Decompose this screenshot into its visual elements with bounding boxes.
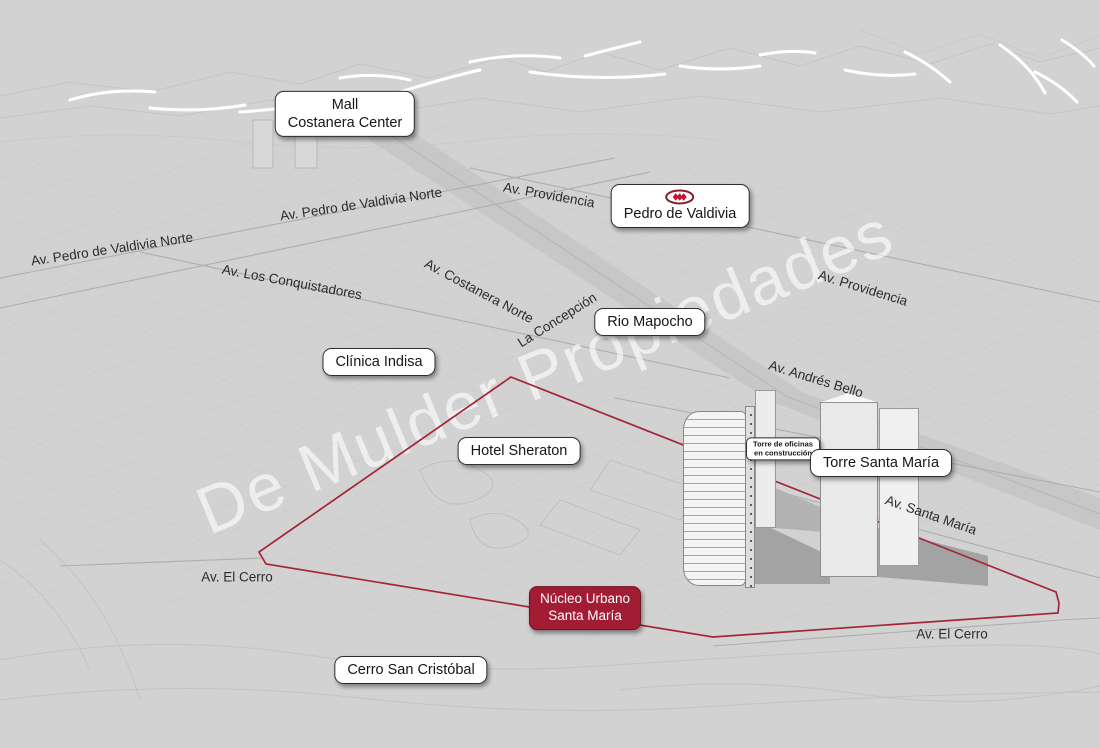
- callout-line: Núcleo Urbano: [540, 591, 630, 608]
- metro-logo-icon: [665, 189, 695, 205]
- metro-station-label: Pedro de Valdivia: [624, 205, 737, 223]
- torre-santa-maria-building: [820, 402, 878, 577]
- snow-streaks: [70, 40, 1094, 112]
- callout-clinica-indisa: Clínica Indisa: [322, 348, 435, 376]
- callout-torre-oficinas-construccion: Torre de oficinas en construcción: [746, 437, 820, 460]
- callout-line: Costanera Center: [288, 114, 402, 132]
- callout-line: Mall: [288, 96, 402, 114]
- callout-cerro-san-cristobal: Cerro San Cristóbal: [334, 656, 487, 684]
- callout-line: Clínica Indisa: [335, 353, 422, 371]
- callout-line: en construcción: [753, 449, 813, 458]
- callout-torre-santa-maria: Torre Santa María: [810, 449, 952, 477]
- callout-mall-costanera-center: Mall Costanera Center: [275, 91, 415, 137]
- tower-right-partial: [879, 408, 919, 566]
- street-label-los-conquistadores: Av. Los Conquistadores: [221, 262, 363, 303]
- callout-rio-mapocho: Rio Mapocho: [594, 308, 705, 336]
- callout-line: Rio Mapocho: [607, 313, 692, 331]
- callout-metro-pedro-de-valdivia: Pedro de Valdivia: [611, 184, 750, 228]
- construction-crane-mast: [745, 406, 755, 588]
- callout-line: Torre Santa María: [823, 454, 939, 472]
- street-label-providencia-top: Av. Providencia: [502, 180, 596, 211]
- callout-line: Hotel Sheraton: [471, 442, 568, 460]
- street-label-andres-bello: Av. Andrés Bello: [767, 358, 865, 401]
- construction-tower: [683, 411, 746, 586]
- callout-nucleo-urbano-santa-maria: Núcleo Urbano Santa María: [529, 586, 641, 630]
- street-label-pedro-de-valdivia-norte-2: Av. Pedro de Valdivia Norte: [279, 184, 443, 223]
- street-label-el-cerro-left: Av. El Cerro: [201, 570, 273, 585]
- street-label-pedro-de-valdivia-norte-1: Av. Pedro de Valdivia Norte: [30, 229, 194, 268]
- mountain-ridges: [0, 30, 1100, 148]
- street-label-costanera-norte: Av. Costanera Norte: [422, 256, 536, 326]
- location-map-illustration: De Mulder Propiedades Av. Pedro de Valdi…: [0, 0, 1100, 748]
- callout-line: Santa María: [540, 608, 630, 625]
- street-label-el-cerro-right: Av. El Cerro: [916, 627, 988, 642]
- callout-line: Cerro San Cristóbal: [347, 661, 474, 679]
- callout-hotel-sheraton: Hotel Sheraton: [458, 437, 581, 465]
